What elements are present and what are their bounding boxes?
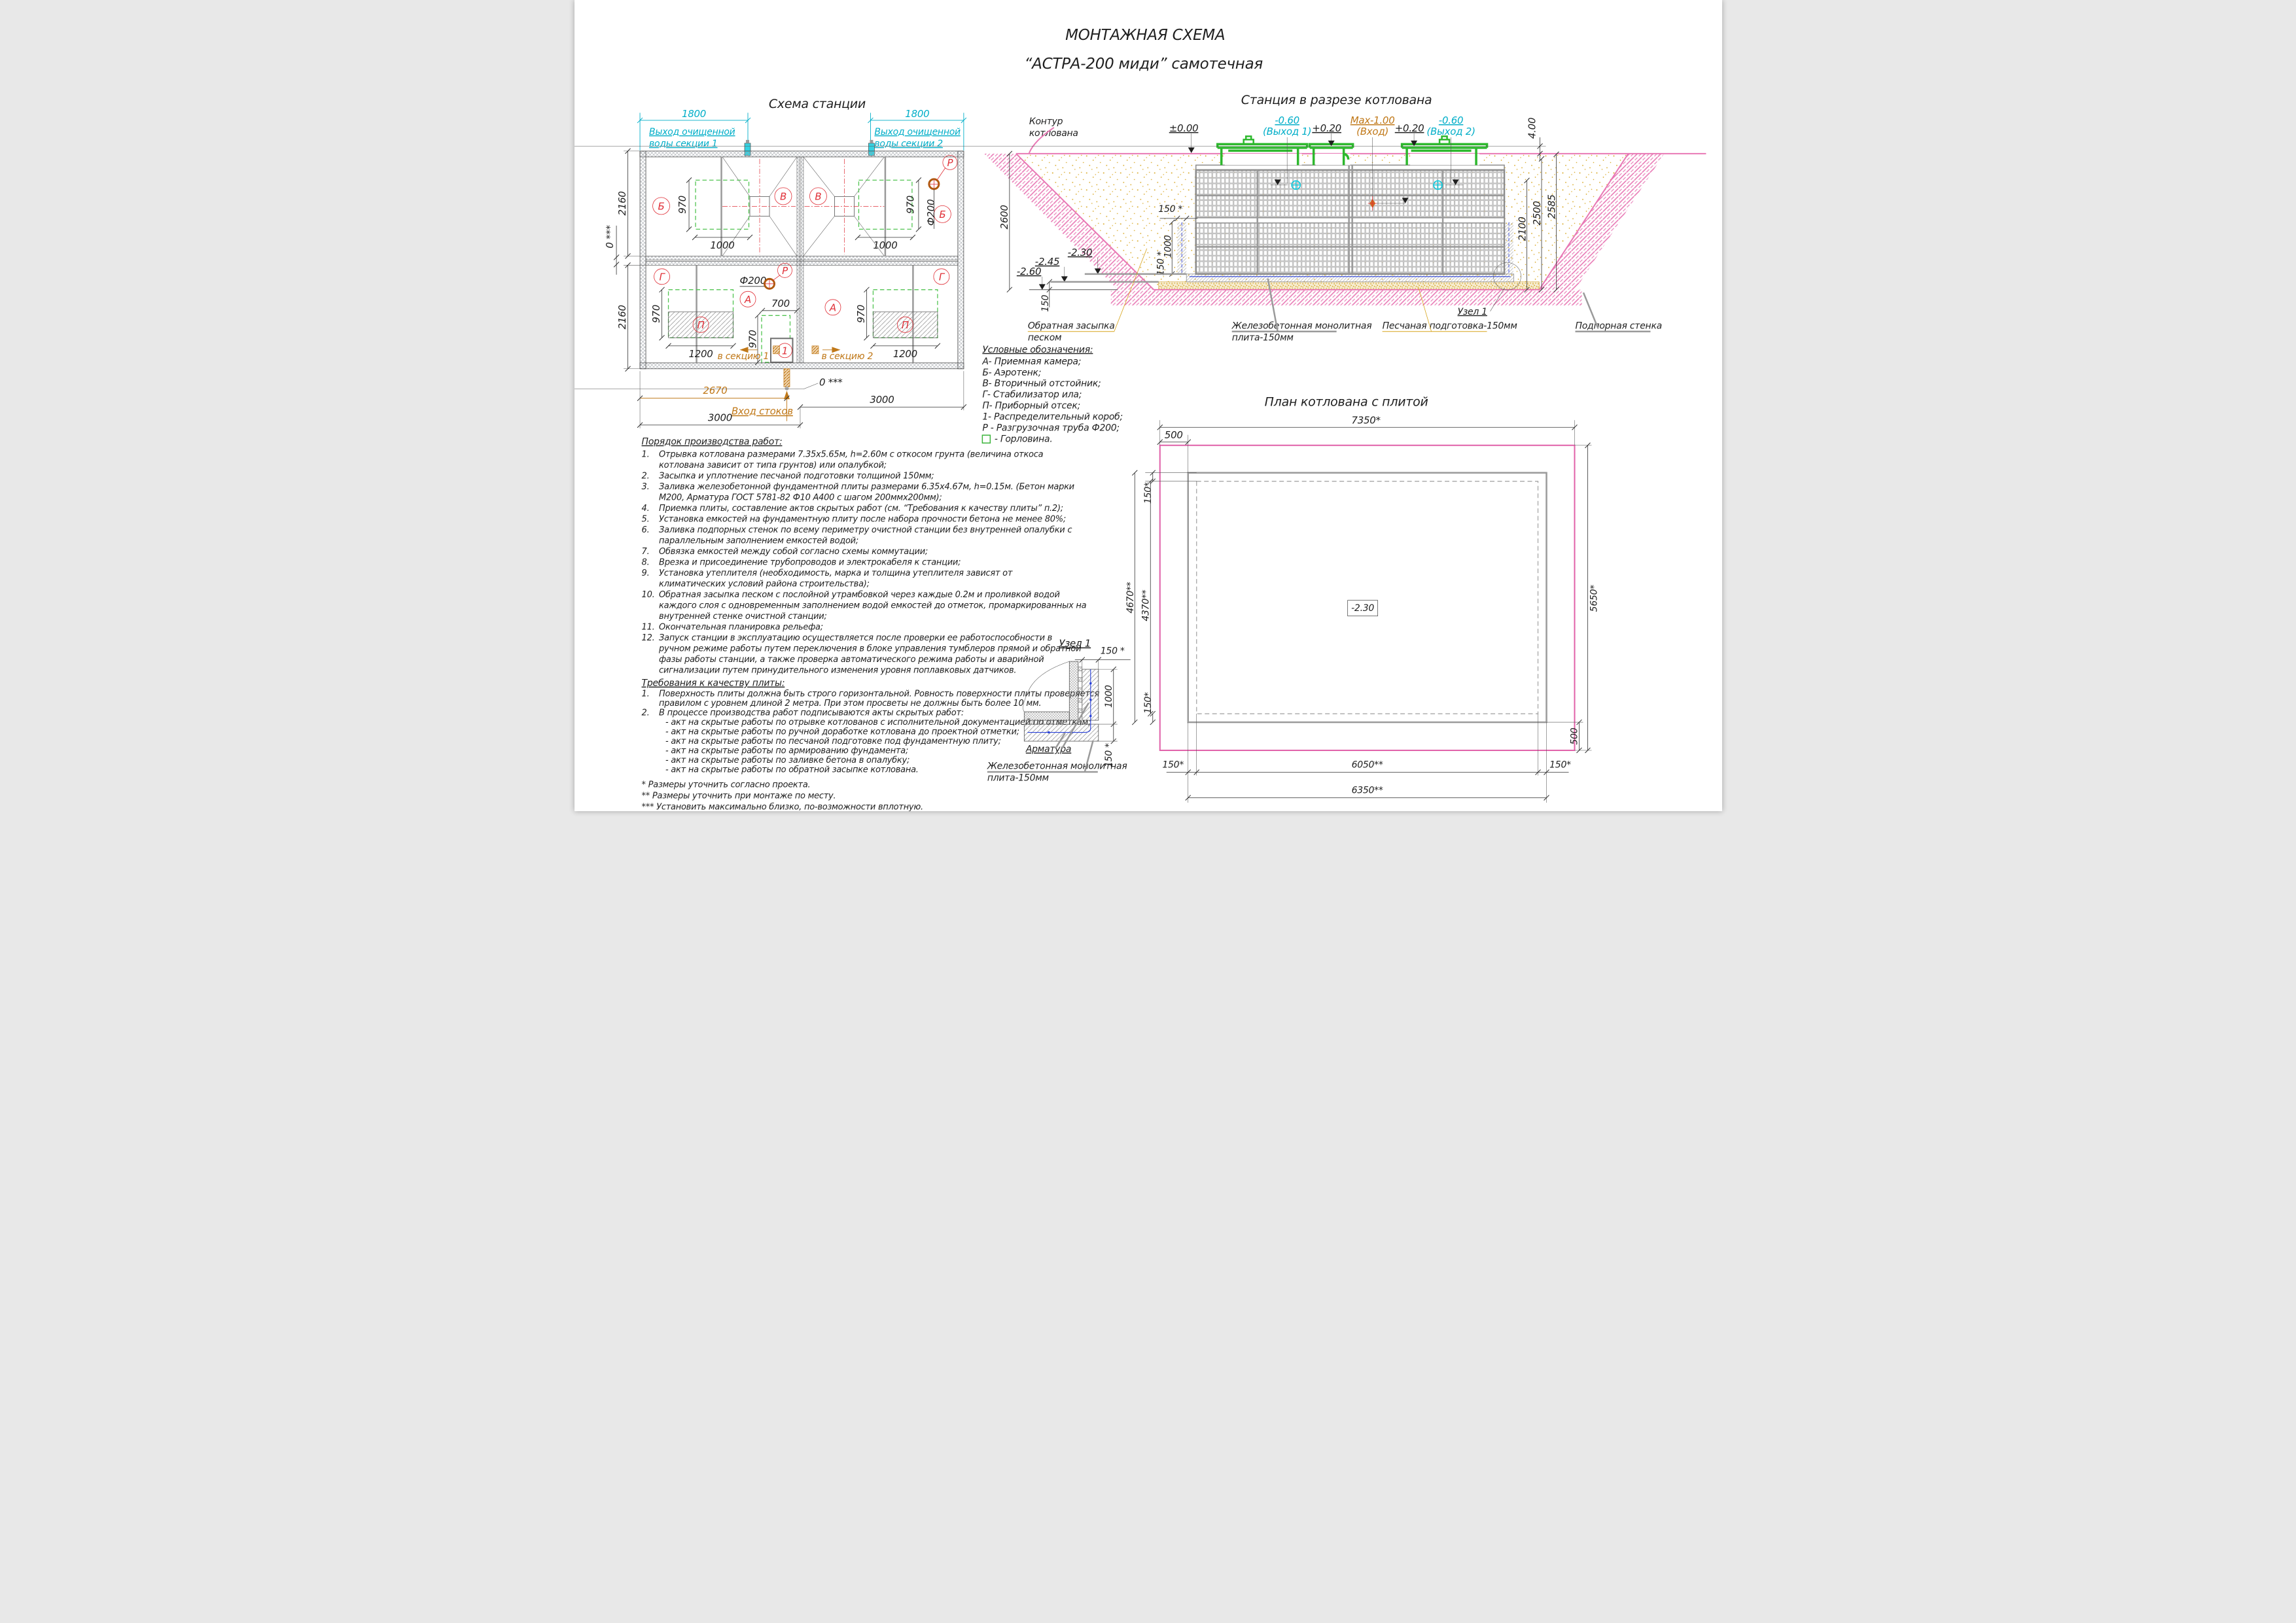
legend-item-a: А- Приемная камера; [981,357,1081,367]
svg-text:6050**: 6050** [1351,760,1383,771]
outlet-riser-1-cap [745,140,749,143]
svg-text:2585: 2585 [1545,194,1557,218]
svg-text:Обратная засыпка: Обратная засыпка [1027,321,1114,331]
svg-text:Выход очищенной: Выход очищенной [874,127,961,137]
svg-text:0 ***: 0 *** [819,377,842,389]
svg-text:Засыпка и уплотнение песчаной: Засыпка и уплотнение песчаной подготовки… [659,472,934,481]
svg-text:Установка утеплителя (необходи: Установка утеплителя (необходимость, мар… [659,568,1013,578]
svg-text:150: 150 [1040,294,1050,311]
svg-text:2100: 2100 [1516,217,1528,241]
legend-item-p: П- Приборный отсек; [982,401,1080,411]
inlet-label: Вход стоков [732,406,793,417]
svg-text:6.: 6. [641,525,649,535]
pit-plan-title: План котлована с плитой [1264,395,1428,410]
footnote-1: * Размеры уточнить согласно проекта. [641,780,810,790]
pit-level-box: -2.30 [1347,601,1377,616]
svg-text:Отрывка котлована размерами 7.: Отрывка котлована размерами 7.35х5.65м, … [659,450,1044,460]
svg-text:1.: 1. [641,689,649,699]
svg-text:2.: 2. [641,472,649,481]
svg-text:воды секции 2: воды секции 2 [874,139,943,149]
svg-text:фазы работы станции, а также п: фазы работы станции, а также проверка ав… [659,655,1044,665]
label-B-right: Б [939,209,945,220]
svg-text:7350*: 7350* [1351,415,1381,427]
svg-text:2.: 2. [641,708,649,718]
svg-text:6350**: 6350** [1351,786,1383,796]
legend-item-neck: - Горловина. [994,434,1052,445]
footnote-3: *** Установить максимально близко, по-во… [641,803,923,811]
svg-text:Приемка плиты, составление акт: Приемка плиты, составление актов скрытых… [659,504,1063,514]
tank-section [1195,165,1504,273]
svg-text:2600: 2600 [998,205,1010,229]
svg-text:-0.60: -0.60 [1438,114,1463,126]
outlet-riser-2-cap [870,140,873,143]
svg-text:Выход очищенной: Выход очищенной [649,127,735,137]
label-A-right: А [828,302,836,313]
svg-text:- акт на скрытые работы по арм: - акт на скрытые работы по армированию ф… [665,746,908,756]
svg-text:150 *: 150 * [1100,646,1124,657]
svg-text:4.: 4. [641,504,649,514]
svg-text:1200: 1200 [892,348,917,360]
svg-text:3000: 3000 [870,394,894,406]
legend-item-g: Г- Стабилизатор ила; [982,390,1082,400]
legend-title: Условные обозначения: [982,345,1093,355]
svg-text:4670**: 4670** [1125,582,1135,613]
label-R-top: Р [947,157,953,169]
svg-text:Заливка подпорных стенок по вс: Заливка подпорных стенок по всему периме… [659,525,1072,535]
phi200-bottom: Ф200 [739,275,766,287]
svg-text:Мах-1.00: Мах-1.00 [1350,114,1394,126]
svg-text:Подпорная стенка: Подпорная стенка [1575,321,1662,331]
svg-text:970: 970 [677,196,688,214]
svg-text:1000: 1000 [710,239,734,251]
svg-text:-2.30: -2.30 [1351,603,1374,614]
svg-text:Песчаная подготовка-150мм: Песчаная подготовка-150мм [1382,321,1517,331]
svg-text:150*: 150* [1143,692,1154,714]
svg-text:(Вход): (Вход) [1356,126,1388,137]
svg-text:12.: 12. [641,633,654,643]
svg-text:(Выход 2): (Выход 2) [1426,126,1475,137]
label-R-bottom: Р [782,265,788,277]
svg-text:Окончательная планировка релье: Окончательная планировка рельефа; [659,623,823,633]
svg-text:Железобетонная монолитная: Железобетонная монолитная [1231,321,1371,331]
svg-text:внутренней стенке очистной ста: внутренней стенке очистной станции; [659,612,827,621]
svg-text:Контур: Контур [1029,116,1063,127]
svg-text:- акт на скрытые работы по пес: - акт на скрытые работы по песчаной подг… [665,737,1001,746]
svg-text:500: 500 [1164,429,1182,441]
svg-text:3000: 3000 [707,412,732,424]
svg-text:970: 970 [650,305,662,323]
svg-text:150*: 150* [1143,482,1154,504]
svg-text:1200: 1200 [688,348,713,360]
foundation-plate [1186,274,1513,282]
svg-text:Железобетонная монолитная: Железобетонная монолитная [986,761,1127,772]
svg-text:11.: 11. [641,623,654,633]
pipe-stub-left [773,346,779,354]
svg-text:М200, Арматура ГОСТ 5781-82 Ф1: М200, Арматура ГОСТ 5781-82 Ф10 А400 с ш… [659,493,942,503]
svg-text:сигнализации путем принудитель: сигнализации путем принудительного измен… [659,666,1016,676]
legend-item-b: Б- Аэротенк; [982,368,1041,378]
svg-text:1000: 1000 [873,239,897,251]
svg-text:плита-150мм: плита-150мм [987,773,1049,784]
footnote-2: ** Размеры уточнить при монтаже по месту… [641,792,836,801]
svg-text:+0.20: +0.20 [1312,122,1341,134]
svg-text:±0.00: ±0.00 [1169,122,1198,134]
label-B-left: Б [658,200,664,212]
svg-text:4.00: 4.00 [1526,118,1538,139]
svg-text:Заливка железобетонной фундаме: Заливка железобетонной фундаментной плит… [659,482,1074,492]
svg-text:Установка емкостей на фундамен: Установка емкостей на фундаментную плиту… [659,515,1066,525]
to-section2-label: в секцию 2 [821,351,873,362]
pit-bottom-ground [1110,290,1581,305]
label-V-left: В [779,190,786,202]
svg-text:1800: 1800 [905,108,929,120]
svg-text:Запуск станции в эксплуатацию: Запуск станции в эксплуатацию осуществля… [659,633,1052,643]
svg-text:5650*: 5650* [1589,585,1599,612]
legend-item-r: Р - Разгрузочная труба Ф200; [982,423,1120,434]
to-section1-label: в секцию 1 [717,351,769,362]
svg-text:2160: 2160 [616,305,628,329]
dim-150-wall: 150 * [1156,251,1166,275]
svg-text:970: 970 [904,196,916,214]
svg-text:+0.20: +0.20 [1394,122,1424,134]
phi200-top: Ф200 [925,200,936,226]
svg-text:Обвязка емкостей между собой с: Обвязка емкостей между собой согласно сх… [659,547,928,557]
inlet-pipe [783,369,789,387]
svg-text:(Выход 1): (Выход 1) [1263,126,1311,137]
outlet2-level-symbol [1434,181,1442,189]
legend-item-1: 1- Распределительный короб; [982,412,1123,423]
svg-text:970: 970 [747,330,758,348]
legend-item-v: В- Вторичный отстойник; [982,379,1101,389]
svg-text:0 ***: 0 *** [604,224,616,248]
svg-text:климатических условий района с: климатических условий района строительст… [659,580,870,589]
svg-text:500: 500 [1569,727,1580,744]
svg-text:970: 970 [855,305,866,323]
svg-text:2160: 2160 [616,191,628,215]
svg-text:- акт на скрытые работы по обр: - акт на скрытые работы по обратной засы… [665,765,919,775]
label-P-left: П [697,319,704,331]
svg-text:-2.30: -2.30 [1067,247,1092,258]
svg-text:150*: 150* [1549,760,1571,771]
drawing-title: МОНТАЖНАЯ СХЕМА [1065,27,1225,44]
drawing-subtitle: “АСТРА-200 миди” самотечная [1024,56,1263,73]
label-P-right: П [901,319,908,331]
drawing-sheet: МОНТАЖНАЯ СХЕМА “АСТРА-200 миди” самотеч… [574,0,1722,811]
label-A-left: А [743,294,751,305]
svg-text:8.: 8. [641,558,649,568]
svg-text:Узел 1: Узел 1 [1457,307,1487,317]
station-plan-title: Схема станции [768,97,865,111]
node1-title: Узел 1 [1059,638,1091,650]
svg-text:воды секции 1: воды секции 1 [649,139,717,149]
label-1: 1 [781,345,787,357]
sand-prep-strip [1158,282,1539,290]
work-order-title: Порядок производства работ: [641,437,782,447]
svg-text:1.: 1. [641,450,649,460]
svg-text:песком: песком [1027,332,1061,343]
svg-text:2670: 2670 [703,385,727,396]
svg-text:Обратная засыпка песком с посл: Обратная засыпка песком с послойной утра… [659,590,1060,600]
svg-text:В процессе производства работ: В процессе производства работ подписываю… [659,708,964,718]
svg-text:4370**: 4370** [1140,589,1151,621]
svg-text:9.: 9. [641,568,649,578]
svg-text:1800: 1800 [681,108,705,120]
svg-text:ручном режиме работы путем пер: ручном режиме работы путем переключения … [658,644,1081,654]
svg-text:правилом с уровнем длиной 2 ме: правилом с уровнем длиной 2 метра. При э… [659,699,1041,708]
svg-text:котлована зависит от типа грун: котлована зависит от типа грунтов) или о… [659,461,887,470]
svg-text:- акт на скрытые работы по руч: - акт на скрытые работы по ручной дорабо… [665,727,1019,737]
svg-text:котлована: котлована [1029,128,1078,139]
svg-text:5.: 5. [641,515,649,525]
svg-text:Врезка и присоединение трубопр: Врезка и присоединение трубопроводов и э… [659,558,961,568]
svg-text:каждого слоя с одновременным з: каждого слоя с одновременным заполнением… [659,601,1087,611]
svg-text:150 *: 150 * [1158,204,1182,215]
svg-text:-2.60: -2.60 [1016,266,1041,277]
svg-text:параллельным заполнением емкос: параллельным заполнением емкостей водой; [659,536,858,546]
pipe-stub-right [811,346,818,354]
svg-text:150*: 150* [1162,760,1184,771]
svg-text:700: 700 [771,298,790,309]
svg-text:3.: 3. [641,482,649,492]
label-V-right: В [815,190,821,202]
svg-text:плита-150мм: плита-150мм [1231,332,1294,343]
svg-text:- акт на скрытые работы по зал: - акт на скрытые работы по заливке бетон… [665,756,910,765]
outlet1-level-symbol [1292,181,1300,189]
requirements-title: Требования к качеству плиты: [641,678,785,689]
svg-text:1000: 1000 [1103,685,1114,708]
svg-text:7.: 7. [641,547,649,557]
svg-text:10.: 10. [641,590,654,600]
svg-text:Поверхность плиты должна быть: Поверхность плиты должна быть строго гор… [659,689,1099,699]
section-title: Станция в разрезе котлована [1241,93,1432,107]
svg-text:-0.60: -0.60 [1275,114,1299,126]
svg-text:2500: 2500 [1531,201,1543,225]
